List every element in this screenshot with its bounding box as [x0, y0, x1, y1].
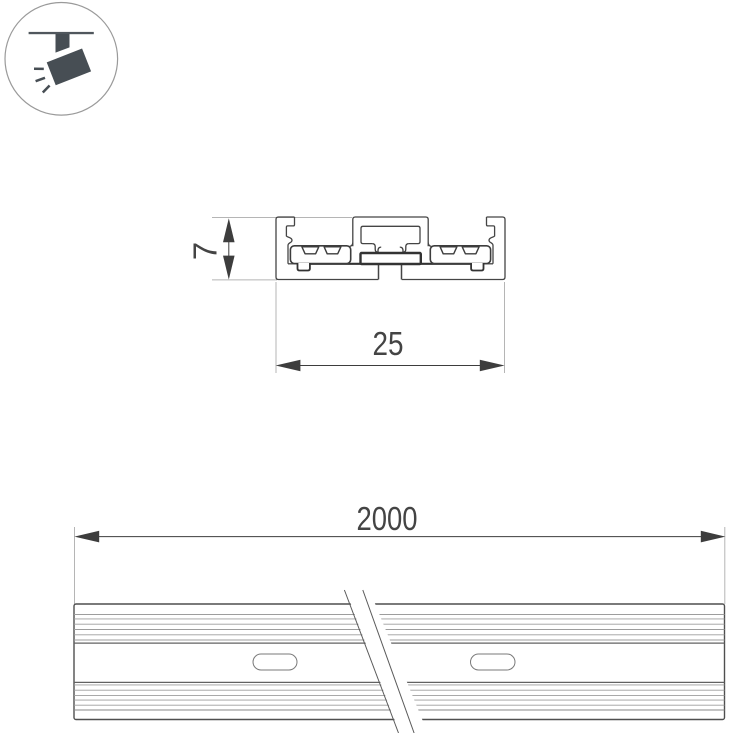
svg-text:7: 7: [187, 242, 224, 260]
svg-text:25: 25: [373, 325, 404, 362]
svg-text:2000: 2000: [357, 500, 418, 537]
